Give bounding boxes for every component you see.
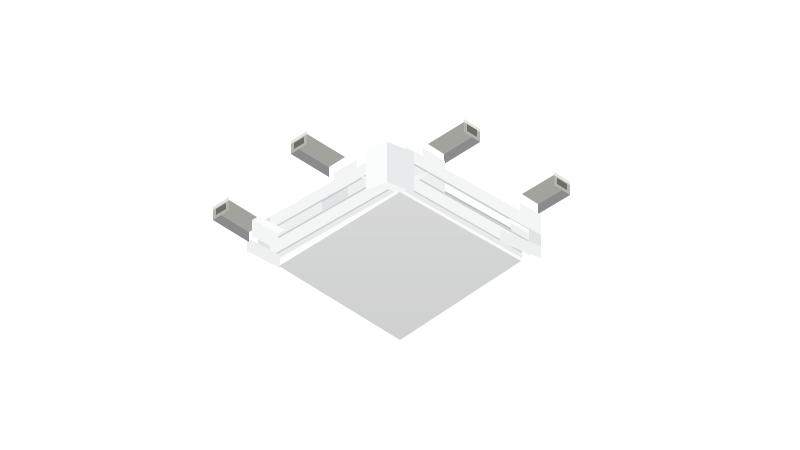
contact-tab-right-outer [522, 172, 570, 214]
product-render [0, 0, 800, 450]
contact-tab-upper-left [291, 131, 345, 177]
corner-ridge-left-face [366, 142, 387, 190]
track-connector-render [213, 119, 570, 340]
